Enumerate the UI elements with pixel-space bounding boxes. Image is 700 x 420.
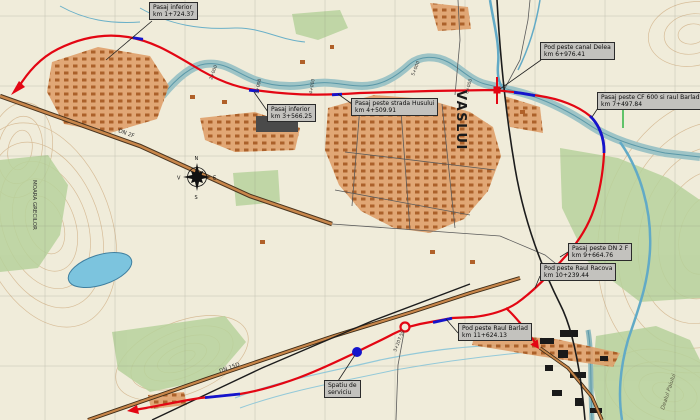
village-name: MOARA GRECILOR [31, 180, 37, 230]
callout-km: km 10+239.44 [544, 272, 612, 279]
callout-pasaj-dn2f: Pasaj peste DN 2 F km 9+664.76 [568, 243, 632, 261]
callout-title: Pasaj peste CF 600 si raul Barlad [601, 94, 700, 101]
callout-title: Pasaj inferior [153, 4, 194, 11]
callout-pasaj-inferior-1: Pasaj inferior km 1+724.37 [149, 2, 198, 20]
callout-title: Pasaj peste DN 2 F [572, 245, 628, 252]
callout-pod-raul-barlad: Pod peste Raul Barlad km 11+624.13 [458, 323, 532, 341]
service-area-dot [352, 347, 362, 357]
callout-title: Pasaj peste strada Husului [355, 100, 434, 107]
topographic-map: N E S V [0, 0, 700, 420]
city-name: VASLUI [453, 90, 468, 151]
callout-title: Spatiu de [328, 382, 357, 389]
callout-spatiu-serviciu: Spatiu de serviciu [324, 380, 361, 398]
callout-title: Pod peste Raul Racova [544, 265, 612, 272]
callout-km: km 11+624.13 [462, 332, 528, 339]
callout-title: Pod peste Raul Barlad [462, 325, 528, 332]
callout-km: serviciu [328, 389, 357, 396]
compass-s: S [195, 195, 198, 201]
compass-w: V [177, 176, 181, 182]
callout-km: km 3+566.25 [271, 113, 312, 120]
compass-e: E [213, 176, 216, 182]
callout-pasaj-strada-husului: Pasaj peste strada Husului km 4+509.91 [351, 98, 438, 116]
callout-title: Pasaj inferior [271, 106, 312, 113]
callout-pod-raul-racova: Pod peste Raul Racova km 10+239.44 [540, 263, 616, 281]
callout-km: km 1+724.37 [153, 11, 194, 18]
roundabout [401, 323, 410, 332]
callout-km: km 6+976.41 [544, 51, 611, 58]
callout-km: km 9+664.76 [572, 252, 628, 259]
callout-pasaj-inferior-2: Pasaj inferior km 3+566.25 [267, 104, 316, 122]
map-viewport: N E S V [0, 0, 700, 420]
callout-title: Pod peste canal Delea [544, 44, 611, 51]
compass-n: N [195, 156, 199, 162]
callout-km: km 7+497.84 [601, 101, 700, 108]
callout-pod-canal-delea: Pod peste canal Delea km 6+976.41 [540, 42, 615, 60]
callout-pasaj-cf600-barlad: Pasaj peste CF 600 si raul Barlad km 7+4… [597, 92, 700, 110]
delea-crossing-node [494, 87, 501, 94]
callout-km: km 4+509.91 [355, 107, 434, 114]
